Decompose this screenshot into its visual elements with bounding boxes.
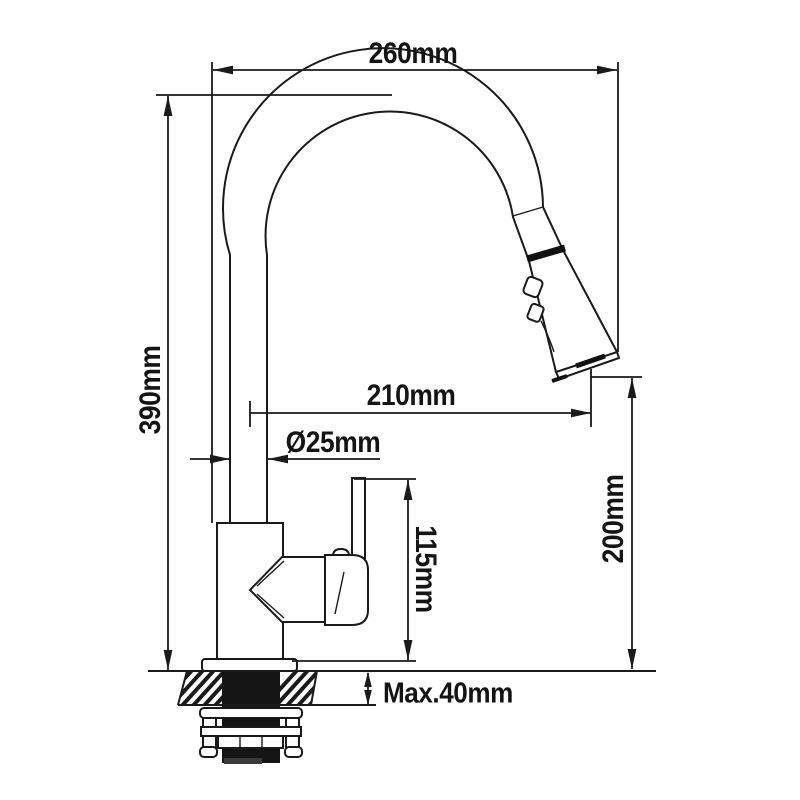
label-pipe-diameter: Ø25mm	[286, 428, 381, 458]
shank-bottom-step	[224, 758, 262, 764]
spout-inner-edge	[266, 112, 556, 524]
label-spout-reach: 210mm	[367, 381, 456, 411]
spray-button-lower	[527, 303, 545, 323]
washer	[200, 708, 302, 718]
handle-lever-rod	[352, 478, 365, 558]
dimension-260	[212, 62, 618, 523]
spray-head-joint-line	[513, 207, 543, 216]
label-total-height: 390mm	[136, 346, 166, 435]
label-handle-height: 115mm	[410, 525, 440, 612]
bracket-bar	[201, 727, 301, 736]
bolt-cap-right	[285, 747, 302, 757]
base-plate	[202, 659, 297, 671]
label-outlet-height: 200mm	[599, 475, 629, 564]
handle-grip	[325, 555, 368, 625]
faucet-body-group	[202, 478, 368, 671]
bolt-cap-left	[200, 747, 217, 757]
dimension-max40	[364, 672, 372, 705]
spout-group	[223, 48, 619, 524]
spray-button-trim	[541, 321, 554, 352]
spout-outer-edge	[223, 48, 617, 524]
spray-tip-dark-strip	[552, 376, 567, 381]
label-max-deck-thickness: Max.40mm	[383, 680, 513, 709]
mounting-nut	[218, 736, 283, 748]
spray-head-band	[527, 248, 565, 259]
spray-button-upper	[522, 276, 543, 299]
faucet-dimension-diagram: 260mm 390mm 210mm Ø25mm 115mm 200mm Max.…	[0, 0, 800, 800]
label-spout-width: 260mm	[369, 39, 458, 69]
